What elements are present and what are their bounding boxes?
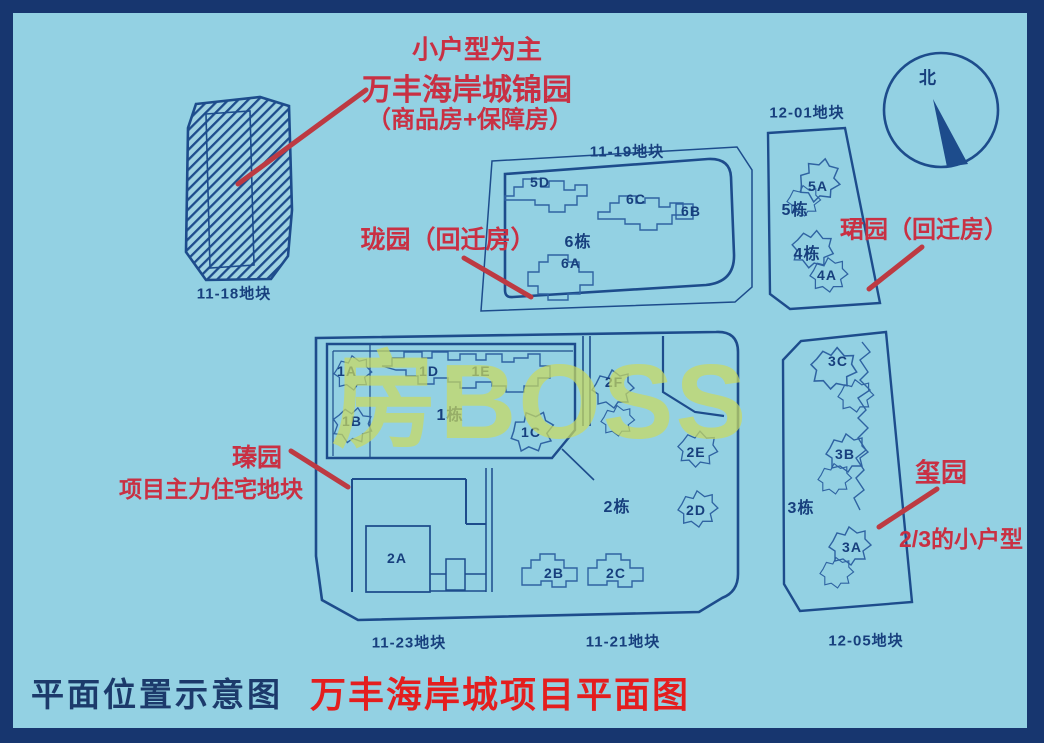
unit-label-3c: 3C bbox=[828, 353, 848, 369]
annotation-jinyuan-paren: （商品房+保障房） bbox=[367, 100, 573, 135]
plot-label-12-01: 12-01地块 bbox=[769, 102, 844, 123]
block-label-2: 2栋 bbox=[604, 493, 631, 517]
unit-label-2d: 2D bbox=[686, 502, 706, 518]
plot-12-05 bbox=[783, 332, 912, 611]
unit-label-2c: 2C bbox=[606, 565, 626, 581]
watermark-text: 房BOSS bbox=[332, 315, 748, 469]
site-plan-canvas: 11-18地块 11-19地块 12-01地块 11-23地块 11-21地块 … bbox=[0, 0, 1044, 743]
unit-label-6c: 6C bbox=[626, 191, 646, 207]
plot-label-11-19: 11-19地块 bbox=[590, 141, 665, 162]
annotation-zhenyuan: 瑧园 bbox=[232, 438, 282, 474]
plot-label-12-05: 12-05地块 bbox=[828, 630, 903, 651]
arrow-longyuan bbox=[464, 258, 531, 297]
compass-north-label: 北 bbox=[919, 64, 937, 89]
annotation-top-note: 小户型为主 bbox=[412, 30, 542, 67]
arrow-junyuan bbox=[869, 247, 922, 289]
site-plan-screenshot: 11-18地块 11-19地块 12-01地块 11-23地块 11-21地块 … bbox=[0, 0, 1044, 743]
building-2a-annex bbox=[430, 559, 486, 591]
plot-label-11-18: 11-18地块 bbox=[197, 283, 272, 304]
annotation-junyuan: 珺园（回迁房） bbox=[840, 210, 1008, 245]
annotation-xiyuan: 玺园 bbox=[915, 453, 967, 490]
unit-label-5d: 5D bbox=[530, 174, 550, 190]
plot-12-05-buildings bbox=[807, 342, 874, 588]
annotation-xiyuan-sub: 2/3的小户型 bbox=[899, 520, 1023, 554]
unit-label-6a: 6A bbox=[561, 255, 581, 271]
unit-label-3a: 3A bbox=[842, 539, 862, 555]
unit-label-2a: 2A bbox=[387, 550, 407, 566]
block-label-6: 6栋 bbox=[565, 228, 592, 252]
street-divider-2 bbox=[486, 468, 492, 592]
annotation-longyuan: 珑园（回迁房） bbox=[360, 220, 535, 256]
plot-label-11-23: 11-23地块 bbox=[372, 632, 447, 653]
unit-label-6b: 6B bbox=[681, 203, 701, 219]
plot-11-18-hatched-building bbox=[186, 97, 292, 280]
unit-label-4a: 4A bbox=[817, 267, 837, 283]
footer-caption: 平面位置示意图 bbox=[31, 668, 283, 716]
annotation-zhenyuan-sub: 项目主力住宅地块 bbox=[119, 470, 303, 504]
block-label-4: 4栋 bbox=[794, 240, 821, 264]
unit-label-5a: 5A bbox=[808, 178, 828, 194]
compass-icon bbox=[884, 53, 998, 167]
unit-label-2b: 2B bbox=[544, 565, 564, 581]
plot-label-11-21: 11-21地块 bbox=[586, 631, 661, 652]
block-label-5: 5栋 bbox=[782, 196, 809, 220]
enclosure-2a-lines bbox=[352, 479, 486, 592]
footer-title: 万丰海岸城项目平面图 bbox=[310, 666, 690, 718]
unit-label-3b: 3B bbox=[835, 446, 855, 462]
plot-11-18-outline bbox=[186, 97, 292, 280]
block-label-3: 3栋 bbox=[788, 494, 815, 518]
